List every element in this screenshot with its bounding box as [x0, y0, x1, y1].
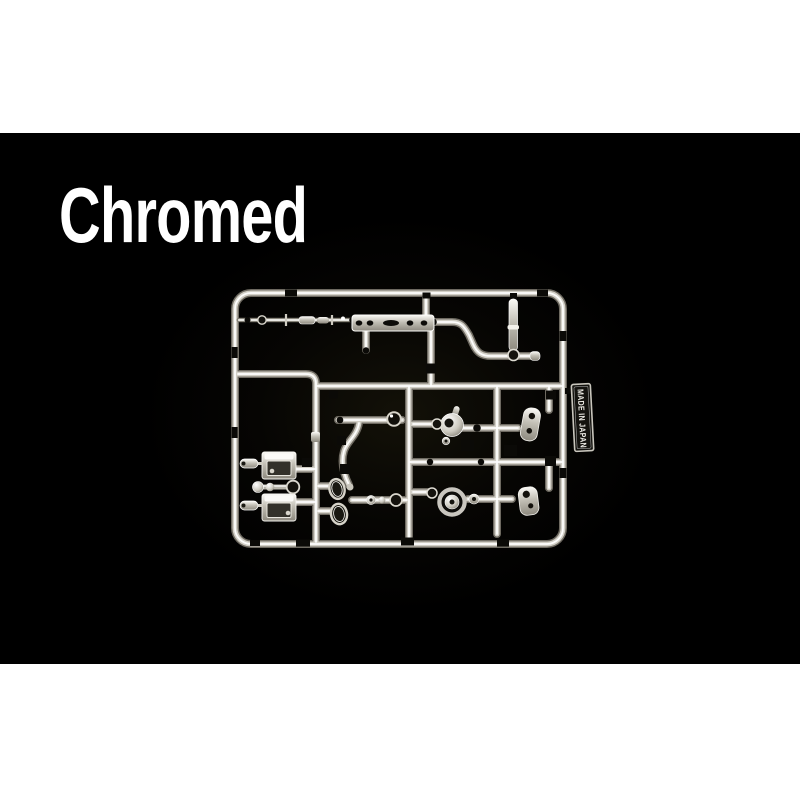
- product-photo: Chromed: [0, 0, 800, 800]
- part-cylinder: [508, 293, 520, 361]
- part-sbend-tip: [530, 352, 540, 361]
- part-horn-1: [432, 405, 464, 444]
- part-slotted-bar: [352, 315, 434, 331]
- letterbox-bottom: [0, 664, 800, 800]
- part-dumbbell: [253, 481, 300, 494]
- part-horn-2: [427, 488, 479, 515]
- part-mirror-2: [329, 503, 348, 526]
- made-in-japan-tag: MADE IN JAPAN: [571, 384, 593, 452]
- chromed-sprue-photo: MADE IN JAPAN: [0, 133, 800, 664]
- part-box-1: [262, 452, 296, 479]
- part-box-2: [262, 494, 296, 521]
- part-bracket-2: [517, 486, 539, 516]
- part-bullet-2: [240, 501, 263, 510]
- part-bullet-1: [240, 459, 263, 468]
- letterbox-top: [0, 0, 800, 133]
- part-bracket-1: [519, 407, 541, 442]
- part-ball: [387, 412, 401, 426]
- part-elbow: [311, 432, 320, 442]
- photo-area: Chromed: [0, 133, 800, 664]
